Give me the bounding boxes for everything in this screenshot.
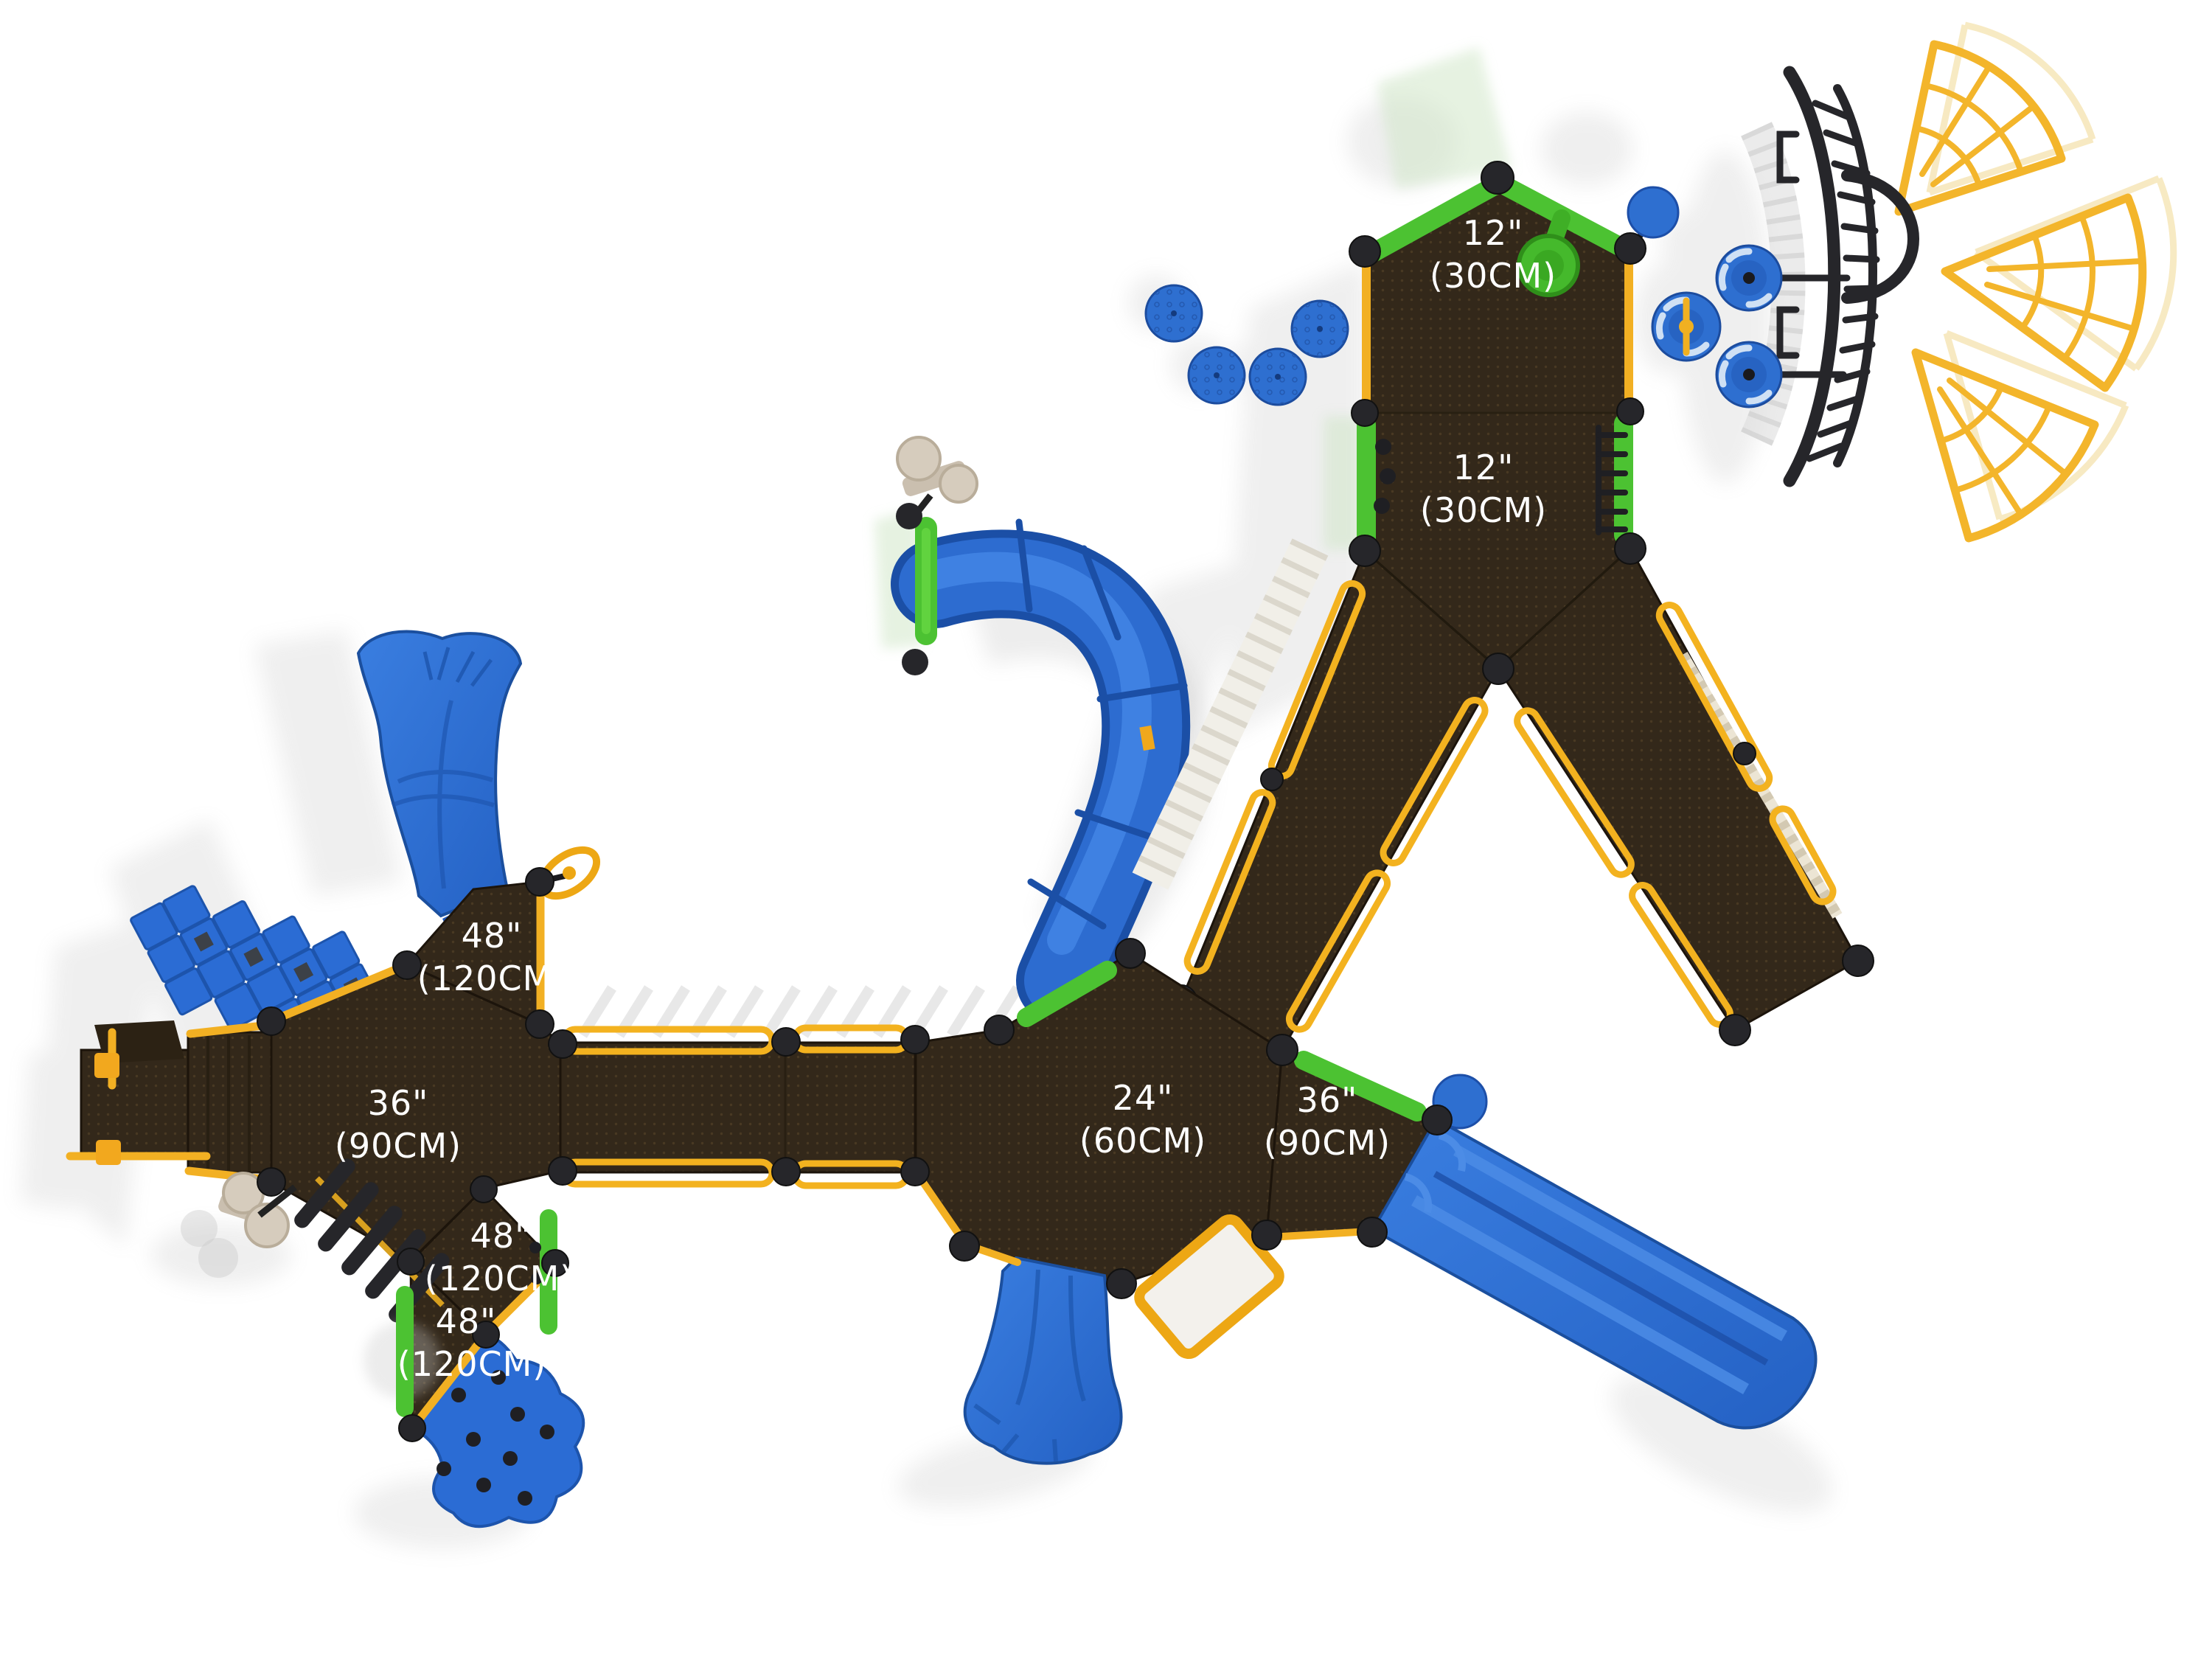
label-deck-36-left-line2: (90CM) xyxy=(335,1126,462,1166)
label-deck-48-lower-line1: 48" xyxy=(436,1301,497,1341)
gyro-spinner xyxy=(1652,293,1720,361)
pod xyxy=(1292,301,1348,357)
pod xyxy=(1250,349,1306,405)
label-deck-top-line2: (30CM) xyxy=(1430,256,1557,296)
label-deck-36-right-line2: (90CM) xyxy=(1264,1123,1391,1163)
mount-plate xyxy=(94,1053,119,1078)
mount-plate xyxy=(96,1140,121,1165)
walkway xyxy=(560,1043,915,1172)
label-deck-24-line1: 24" xyxy=(1113,1078,1174,1118)
post xyxy=(902,649,928,675)
steering-wheel-icon xyxy=(1717,342,1781,407)
ball-finial xyxy=(1628,187,1678,237)
label-deck-36-right-line1: 36" xyxy=(1297,1080,1358,1120)
steering-wheel-icon xyxy=(1717,246,1781,310)
label-deck-mid-line1: 12" xyxy=(1453,448,1514,487)
label-deck-36-left-line1: 36" xyxy=(368,1083,429,1123)
label-deck-48-upper-line1: 48" xyxy=(462,916,523,956)
pod xyxy=(1189,347,1245,403)
label-deck-48-middle-line1: 48" xyxy=(470,1216,532,1256)
label-deck-48-upper-line2: (120CM) xyxy=(417,959,567,998)
pod xyxy=(1146,285,1202,341)
label-deck-48-middle-line2: (120CM) xyxy=(425,1259,574,1298)
label-deck-24-line2: (60CM) xyxy=(1079,1121,1206,1161)
plan-svg: 12" (30CM) 12" (30CM) 48" (120CM) 36" (9… xyxy=(0,0,2212,1659)
playground-plan-view: 12" (30CM) 12" (30CM) 48" (120CM) 36" (9… xyxy=(0,0,2212,1659)
label-deck-48-lower-line2: (120CM) xyxy=(397,1344,547,1384)
label-deck-mid-line2: (30CM) xyxy=(1420,490,1547,530)
post xyxy=(896,503,922,529)
label-deck-top-line1: 12" xyxy=(1463,213,1524,253)
